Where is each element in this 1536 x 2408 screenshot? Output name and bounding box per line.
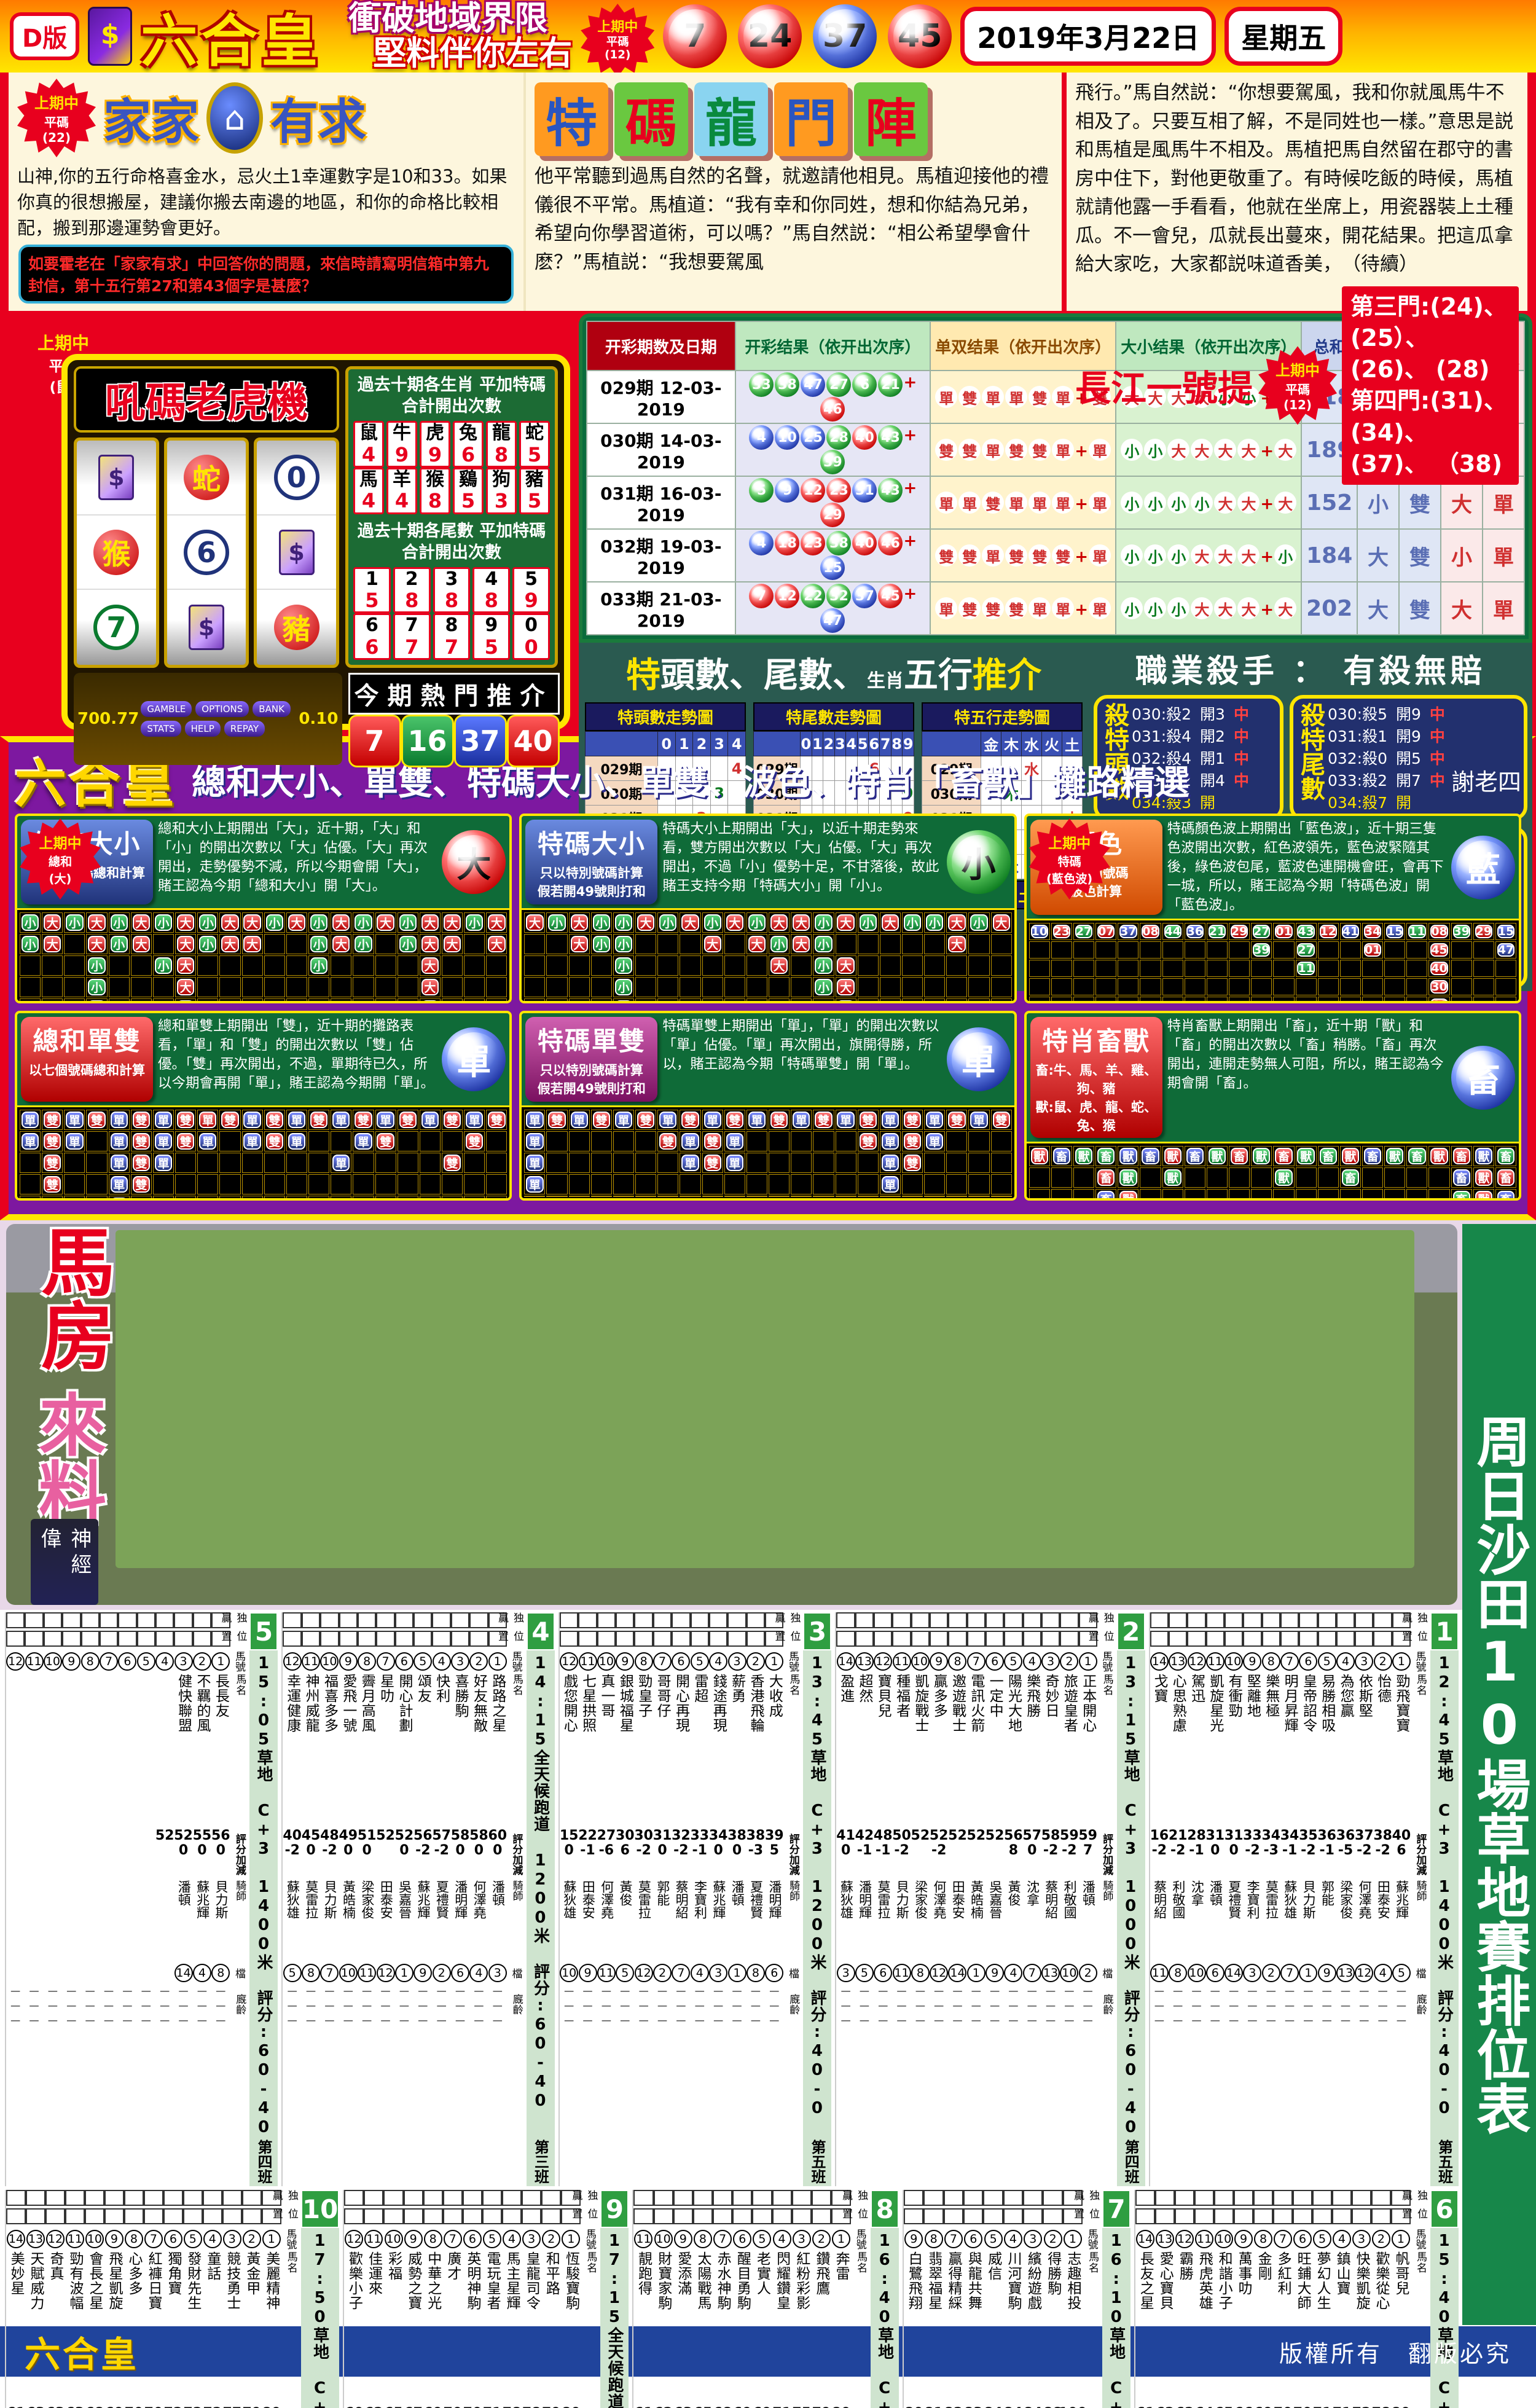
- place-bet-box[interactable]: [904, 2208, 923, 2224]
- win-bet-box[interactable]: [792, 2190, 812, 2206]
- place-bet-box[interactable]: [1175, 2208, 1194, 2224]
- win-bet-box[interactable]: [904, 2190, 923, 2206]
- win-bet-box[interactable]: [1299, 1612, 1317, 1628]
- win-bet-box[interactable]: [923, 2190, 943, 2206]
- horse-number: 4: [155, 1649, 174, 1674]
- place-bet-box[interactable]: [892, 1631, 911, 1647]
- place-bet-box[interactable]: [1060, 1631, 1078, 1647]
- place-bet-box[interactable]: [633, 2208, 653, 2224]
- win-bet-box[interactable]: [633, 2190, 653, 2206]
- gate: 6: [1206, 1961, 1224, 1985]
- win-bet-box[interactable]: [911, 1612, 930, 1628]
- win-bet-box[interactable]: [358, 1612, 376, 1628]
- place-bet-box[interactable]: [1043, 2208, 1062, 2224]
- win-bet-box[interactable]: [1004, 1612, 1022, 1628]
- win-bet-box[interactable]: [242, 2190, 262, 2206]
- win-bet-box[interactable]: [469, 1612, 488, 1628]
- slot-button[interactable]: OPTIONS: [195, 701, 249, 717]
- place-bet-box[interactable]: [502, 2208, 522, 2224]
- panel-grid-cell: [1051, 978, 1072, 995]
- place-bet-box[interactable]: [1273, 2208, 1293, 2224]
- place-bet-box[interactable]: [672, 1631, 690, 1647]
- win-bet-box[interactable]: [1023, 2190, 1043, 2206]
- place-bet-box[interactable]: [65, 2208, 85, 2224]
- grid-pill: 雙: [377, 1133, 394, 1150]
- win-bet-box[interactable]: [81, 1612, 100, 1628]
- panel-grid-cell: [724, 1198, 745, 1199]
- win-bet-box[interactable]: [967, 1612, 985, 1628]
- place-bet-box[interactable]: [482, 2208, 502, 2224]
- win-bet-box[interactable]: [1352, 2190, 1371, 2206]
- place-bet-box[interactable]: [541, 2208, 561, 2224]
- win-bet-box[interactable]: [1135, 2190, 1155, 2206]
- win-bet-box[interactable]: [163, 2190, 183, 2206]
- place-bet-box[interactable]: [985, 1631, 1004, 1647]
- win-bet-box[interactable]: [118, 1612, 136, 1628]
- horse-rating: 59-2: [1060, 1829, 1079, 1880]
- win-bet-box[interactable]: [1187, 1612, 1205, 1628]
- slot-button[interactable]: REPAY: [224, 721, 265, 737]
- place-bet-box[interactable]: [654, 2208, 673, 2224]
- place-bet-box[interactable]: [772, 2208, 792, 2224]
- win-bet-box[interactable]: [1043, 2190, 1062, 2206]
- win-bet-box[interactable]: [1060, 1612, 1078, 1628]
- tail-key: 1: [355, 569, 389, 590]
- place-bet-box[interactable]: [812, 2208, 831, 2224]
- horse-number-circle: 8: [358, 1652, 376, 1671]
- place-bet-box[interactable]: [463, 2208, 482, 2224]
- win-bet-box[interactable]: [65, 2190, 85, 2206]
- place-bet-box[interactable]: [855, 1631, 874, 1647]
- place-bet-box[interactable]: [404, 2208, 423, 2224]
- panel-grid-cell: [486, 1174, 507, 1194]
- slot-button[interactable]: BANK: [253, 701, 291, 717]
- panel-grid-cell: [1051, 1167, 1072, 1188]
- win-bet-box[interactable]: [124, 2190, 144, 2206]
- place-bet-box[interactable]: [1023, 2208, 1043, 2224]
- place-bet-box[interactable]: [1243, 1631, 1261, 1647]
- win-bet-box[interactable]: [752, 2190, 772, 2206]
- win-bet-box[interactable]: [836, 1612, 855, 1628]
- reel-symbol: 猴: [93, 530, 139, 575]
- win-bet-box[interactable]: [320, 1612, 339, 1628]
- place-bet-box[interactable]: [691, 1631, 709, 1647]
- panel-grid-cell: 34: [1362, 923, 1383, 940]
- place-bet-box[interactable]: [443, 2208, 463, 2224]
- win-bet-box[interactable]: [985, 1612, 1004, 1628]
- win-bet-box[interactable]: [364, 2190, 383, 2206]
- win-bet-box[interactable]: [892, 1612, 911, 1628]
- win-bet-box[interactable]: [1194, 2190, 1214, 2206]
- win-bet-box[interactable]: [222, 2190, 242, 2206]
- place-bet-box[interactable]: [792, 2208, 812, 2224]
- place-bet-box[interactable]: [137, 1631, 155, 1647]
- slot-button[interactable]: STATS: [141, 721, 181, 737]
- place-bet-box[interactable]: [948, 1631, 966, 1647]
- win-bet-box[interactable]: [413, 1612, 432, 1628]
- place-bet-box[interactable]: [1352, 2208, 1371, 2224]
- place-bet-box[interactable]: [45, 2208, 65, 2224]
- place-bet-box[interactable]: [923, 2208, 943, 2224]
- place-bet-box[interactable]: [597, 1631, 616, 1647]
- win-bet-box[interactable]: [1003, 2190, 1023, 2206]
- win-bet-box[interactable]: [395, 1612, 413, 1628]
- win-bet-box[interactable]: [339, 1612, 358, 1628]
- place-bet-box[interactable]: [432, 1631, 450, 1647]
- win-bet-box[interactable]: [578, 1612, 597, 1628]
- win-bet-box[interactable]: [203, 2190, 222, 2206]
- place-bet-box[interactable]: [634, 1631, 652, 1647]
- place-bet-box[interactable]: [522, 2208, 541, 2224]
- panel-grid-cell: 畜: [1406, 1146, 1427, 1166]
- place-bet-box[interactable]: [222, 2208, 242, 2224]
- win-bet-box[interactable]: [772, 2190, 792, 2206]
- panel-grid-cell: [1185, 960, 1205, 977]
- place-bet-box[interactable]: [81, 1631, 100, 1647]
- place-bet-box[interactable]: [1004, 1631, 1022, 1647]
- place-bet-box[interactable]: [118, 1631, 136, 1647]
- panel-grid-cell: [1029, 960, 1050, 977]
- win-bet-box[interactable]: [44, 1612, 62, 1628]
- place-bet-box[interactable]: [693, 2208, 713, 2224]
- place-bet-box[interactable]: [1253, 2208, 1273, 2224]
- place-bet-box[interactable]: [6, 2208, 26, 2224]
- horse-number: 13: [26, 2227, 45, 2251]
- place-bet-box[interactable]: [709, 1631, 727, 1647]
- win-bet-box[interactable]: [302, 1612, 320, 1628]
- horse-name: 幸運健康: [285, 1674, 300, 1829]
- place-bet-box[interactable]: [1155, 2208, 1175, 2224]
- panel-grid-cell: 大: [175, 934, 196, 954]
- win-bet-box[interactable]: [1214, 2190, 1234, 2206]
- win-bet-box[interactable]: [1273, 2190, 1293, 2206]
- win-bet-box[interactable]: [963, 2190, 983, 2206]
- place-bet-box[interactable]: [62, 1631, 80, 1647]
- place-bet-box[interactable]: [578, 1631, 597, 1647]
- grid-pill: 小: [860, 914, 877, 931]
- place-bet-box[interactable]: [469, 1631, 488, 1647]
- win-bet-box[interactable]: [432, 1612, 450, 1628]
- place-bet-box[interactable]: [25, 1631, 43, 1647]
- place-bet-box[interactable]: [242, 2208, 262, 2224]
- win-bet-box[interactable]: [183, 2190, 203, 2206]
- place-bet-box[interactable]: [560, 1631, 578, 1647]
- win-bet-box[interactable]: [1280, 1612, 1299, 1628]
- win-bet-box[interactable]: [26, 2190, 45, 2206]
- place-bet-box[interactable]: [6, 1631, 25, 1647]
- horse-column: 5雷超33-1李寶利4一 一 一: [691, 1612, 709, 2186]
- win-bet-box[interactable]: [560, 1612, 578, 1628]
- win-bet-box[interactable]: [983, 2190, 1003, 2206]
- place-bet-box[interactable]: [358, 1631, 376, 1647]
- grid-pill: 畜: [1275, 1148, 1292, 1164]
- place-bet-box[interactable]: [911, 1631, 930, 1647]
- panel-grid-cell: 大: [219, 912, 240, 933]
- place-bet-box[interactable]: [653, 1631, 672, 1647]
- panel-grid-cell: 大: [86, 912, 107, 933]
- slot-button[interactable]: HELP: [185, 721, 221, 737]
- place-bet-box[interactable]: [26, 2208, 45, 2224]
- win-bet-box[interactable]: [1224, 1612, 1243, 1628]
- place-bet-box[interactable]: [1224, 1631, 1243, 1647]
- win-bet-box[interactable]: [193, 1612, 211, 1628]
- horse-number-circle: 4: [1023, 1652, 1041, 1671]
- place-bet-box[interactable]: [155, 1631, 174, 1647]
- place-bet-box[interactable]: [1299, 1631, 1317, 1647]
- gate-circle: 12: [377, 1964, 395, 1982]
- place-bet-box[interactable]: [85, 2208, 104, 2224]
- win-bet-box[interactable]: [463, 2190, 482, 2206]
- special-ball: 29: [820, 503, 845, 527]
- win-bet-box[interactable]: [746, 1612, 765, 1628]
- win-bet-box[interactable]: [155, 1612, 174, 1628]
- win-bet-box[interactable]: [85, 2190, 104, 2206]
- place-bet-box[interactable]: [1135, 2208, 1155, 2224]
- win-bet-box[interactable]: [672, 1612, 690, 1628]
- horse-number-circle: 6: [733, 2230, 751, 2248]
- panel-grid-cell: 12: [1318, 923, 1339, 940]
- place-bet-box[interactable]: [1312, 2208, 1332, 2224]
- win-bet-box[interactable]: [1262, 1612, 1280, 1628]
- win-bet-box[interactable]: [404, 2190, 423, 2206]
- place-bet-box[interactable]: [963, 2208, 983, 2224]
- win-bet-box[interactable]: [137, 1612, 155, 1628]
- place-bet-box[interactable]: [174, 1631, 192, 1647]
- place-bet-box[interactable]: [124, 2208, 144, 2224]
- win-bet-box[interactable]: [732, 2190, 752, 2206]
- place-bet-box[interactable]: [1293, 2208, 1312, 2224]
- place-bet-box[interactable]: [1169, 1631, 1187, 1647]
- win-bet-box[interactable]: [597, 1612, 616, 1628]
- rating-value: 22: [578, 1829, 597, 1843]
- gate-circle: 14: [1224, 1964, 1243, 1982]
- race-row-label: 廐齡: [1099, 1985, 1115, 2024]
- place-bet-box[interactable]: [1336, 1631, 1355, 1647]
- gate: 14: [948, 1961, 966, 1985]
- place-bet-box[interactable]: [1355, 1631, 1373, 1647]
- win-bet-box[interactable]: [45, 2190, 65, 2206]
- panel-grid-cell: 單: [880, 1131, 901, 1151]
- panel-grid-cell: [546, 977, 567, 997]
- place-bet-box[interactable]: [1206, 1631, 1224, 1647]
- place-bet-box[interactable]: [451, 1631, 469, 1647]
- win-bet-box[interactable]: [1318, 1612, 1336, 1628]
- place-bet-box[interactable]: [930, 1631, 948, 1647]
- panel-grid-cell: [657, 955, 678, 976]
- place-bet-box[interactable]: [713, 2208, 732, 2224]
- place-bet-box[interactable]: [1187, 1631, 1205, 1647]
- place-bet-box[interactable]: [193, 1631, 211, 1647]
- place-bet-box[interactable]: [44, 1631, 62, 1647]
- place-bet-box[interactable]: [163, 2208, 183, 2224]
- win-bet-box[interactable]: [174, 1612, 192, 1628]
- win-bet-box[interactable]: [1169, 1612, 1187, 1628]
- place-bet-box[interactable]: [1150, 1631, 1169, 1647]
- place-bet-box[interactable]: [1332, 2208, 1352, 2224]
- gate: 9: [1318, 1961, 1336, 1985]
- panel-grid-cell: [657, 1198, 678, 1199]
- win-bet-box[interactable]: [344, 2190, 364, 2206]
- win-bet-box[interactable]: [1332, 2190, 1352, 2206]
- win-bet-box[interactable]: [616, 1612, 634, 1628]
- winning-ball: 45: [888, 4, 952, 68]
- place-bet-box[interactable]: [423, 2208, 443, 2224]
- win-bet-box[interactable]: [948, 1612, 966, 1628]
- win-bet-box[interactable]: [482, 2190, 502, 2206]
- horse-number: 12: [1175, 2227, 1194, 2251]
- win-bet-box[interactable]: [1312, 2190, 1332, 2206]
- race-header-strip: 716:10草地 C+3 1600米 評分:100-80第二班: [1102, 2190, 1130, 2408]
- horse-number-circle: 7: [100, 1652, 118, 1671]
- place-bet-box[interactable]: [1371, 2208, 1391, 2224]
- win-bet-box[interactable]: [423, 2190, 443, 2206]
- place-bet-box[interactable]: [1280, 1631, 1299, 1647]
- win-bet-box[interactable]: [6, 1612, 25, 1628]
- win-bet-box[interactable]: [1293, 2190, 1312, 2206]
- panel-grid-cell: 44: [1162, 923, 1183, 940]
- panel-grid-cell: [331, 1196, 351, 1201]
- place-bet-box[interactable]: [339, 1631, 358, 1647]
- draw-period: 029期 12-03-2019: [587, 371, 735, 423]
- win-bet-box[interactable]: [874, 1612, 892, 1628]
- place-bet-box[interactable]: [1373, 1631, 1392, 1647]
- win-bet-box[interactable]: [693, 2190, 713, 2206]
- panel-grid-cell: 大: [242, 912, 263, 933]
- place-bet-box[interactable]: [1041, 1631, 1060, 1647]
- grid-pill: 單: [332, 1112, 350, 1128]
- draw-ball: 27: [826, 372, 851, 397]
- place-bet-box[interactable]: [1234, 2208, 1253, 2224]
- tail-panel-title: 過去十期各尾數 平加特碼合計開出次數: [353, 520, 550, 563]
- win-bet-box[interactable]: [502, 2190, 522, 2206]
- place-bet-box[interactable]: [746, 1631, 765, 1647]
- jockey-name: 田泰安: [1376, 1880, 1389, 1961]
- gate-circle: 1: [1299, 1964, 1317, 1982]
- place-bet-box[interactable]: [302, 1631, 320, 1647]
- place-bet-box[interactable]: [344, 2208, 364, 2224]
- win-bet-box[interactable]: [1253, 2190, 1273, 2206]
- rating-adjust: -2: [673, 1843, 688, 1858]
- win-bet-box[interactable]: [1155, 2190, 1175, 2206]
- win-bet-box[interactable]: [634, 1612, 652, 1628]
- race-row-label: 檔: [1099, 1961, 1114, 1985]
- place-bet-box[interactable]: [983, 2208, 1003, 2224]
- place-bet-box[interactable]: [395, 1631, 413, 1647]
- panel-grid-cell: 畜: [1095, 1189, 1116, 1201]
- place-bet-box[interactable]: [364, 2208, 383, 2224]
- win-bet-box[interactable]: [1206, 1612, 1224, 1628]
- win-bet-box[interactable]: [6, 2190, 26, 2206]
- win-bet-box[interactable]: [1371, 2190, 1391, 2206]
- place-bet-box[interactable]: [616, 1631, 634, 1647]
- win-bet-box[interactable]: [541, 2190, 561, 2206]
- place-bet-box[interactable]: [413, 1631, 432, 1647]
- panel-grid-cell: [702, 1174, 723, 1194]
- win-bet-box[interactable]: [1234, 2190, 1253, 2206]
- place-bet-box[interactable]: [183, 2208, 203, 2224]
- win-bet-box[interactable]: [673, 2190, 693, 2206]
- place-bet-box[interactable]: [104, 2208, 124, 2224]
- place-bet-box[interactable]: [732, 2208, 752, 2224]
- place-bet-box[interactable]: [100, 1631, 118, 1647]
- place-bet-box[interactable]: [836, 1631, 855, 1647]
- win-bet-box[interactable]: [654, 2190, 673, 2206]
- horse-number: 12: [1188, 1649, 1206, 1674]
- win-bet-box[interactable]: [443, 2190, 463, 2206]
- place-bet-box[interactable]: [383, 2208, 403, 2224]
- place-bet-box[interactable]: [1194, 2208, 1214, 2224]
- gate-circle: 8: [302, 1964, 320, 1982]
- place-bet-box[interactable]: [1262, 1631, 1280, 1647]
- win-bet-box[interactable]: [25, 1612, 43, 1628]
- win-bet-box[interactable]: [144, 2190, 163, 2206]
- win-bet-box[interactable]: [383, 2190, 403, 2206]
- horse-number: 1: [562, 2227, 580, 2251]
- place-bet-box[interactable]: [144, 2208, 163, 2224]
- horse-number: 5: [184, 2227, 202, 2251]
- win-bet-box[interactable]: [1023, 1612, 1041, 1628]
- race-row-label: 評分加減: [233, 1829, 245, 1880]
- win-bet-box[interactable]: [713, 2190, 732, 2206]
- win-bet-box[interactable]: [104, 2190, 124, 2206]
- win-bet-box[interactable]: [727, 1612, 746, 1628]
- win-bet-box[interactable]: [1355, 1612, 1373, 1628]
- place-bet-box[interactable]: [752, 2208, 772, 2224]
- place-bet-box[interactable]: [376, 1631, 394, 1647]
- place-bet-box[interactable]: [673, 2208, 693, 2224]
- win-bet-box[interactable]: [1175, 2190, 1194, 2206]
- win-bet-box[interactable]: [1150, 1612, 1169, 1628]
- grid-pill: 40: [1430, 962, 1448, 975]
- place-bet-box[interactable]: [203, 2208, 222, 2224]
- panel-grid-cell: 小: [813, 912, 834, 933]
- place-bet-box[interactable]: [967, 1631, 985, 1647]
- place-bet-box[interactable]: [874, 1631, 892, 1647]
- win-bet-box[interactable]: [855, 1612, 874, 1628]
- win-bet-box[interactable]: [653, 1612, 672, 1628]
- slot-button[interactable]: GAMBLE: [141, 701, 192, 717]
- record-dashes: 一 一 一: [597, 1985, 616, 2024]
- win-bet-box[interactable]: [1243, 1612, 1261, 1628]
- place-bet-box[interactable]: [944, 2208, 963, 2224]
- win-bet-box[interactable]: [522, 2190, 541, 2206]
- place-bet-box[interactable]: [320, 1631, 339, 1647]
- win-bet-box[interactable]: [1373, 1612, 1392, 1628]
- win-bet-box[interactable]: [709, 1612, 727, 1628]
- horse-number-circle: 3: [1041, 1652, 1060, 1671]
- panel-grid-cell: [131, 998, 152, 1003]
- win-bet-box[interactable]: [100, 1612, 118, 1628]
- place-bet-box[interactable]: [283, 1631, 301, 1647]
- place-bet-box[interactable]: [1003, 2208, 1023, 2224]
- place-bet-box[interactable]: [1023, 1631, 1041, 1647]
- horse-number-circle: 13: [1169, 1652, 1187, 1671]
- place-bet-box[interactable]: [727, 1631, 746, 1647]
- place-bet-box[interactable]: [1318, 1631, 1336, 1647]
- win-bet-box[interactable]: [944, 2190, 963, 2206]
- win-bet-box[interactable]: [1041, 1612, 1060, 1628]
- place-bet-box[interactable]: [1214, 2208, 1234, 2224]
- win-bet-box[interactable]: [812, 2190, 831, 2206]
- gate: 5: [616, 1961, 634, 1985]
- win-bet-box[interactable]: [283, 1612, 301, 1628]
- win-bet-box[interactable]: [376, 1612, 394, 1628]
- win-bet-box[interactable]: [691, 1612, 709, 1628]
- win-bet-box[interactable]: [1336, 1612, 1355, 1628]
- win-bet-box[interactable]: [62, 1612, 80, 1628]
- win-bet-box[interactable]: [451, 1612, 469, 1628]
- win-bet-box[interactable]: [930, 1612, 948, 1628]
